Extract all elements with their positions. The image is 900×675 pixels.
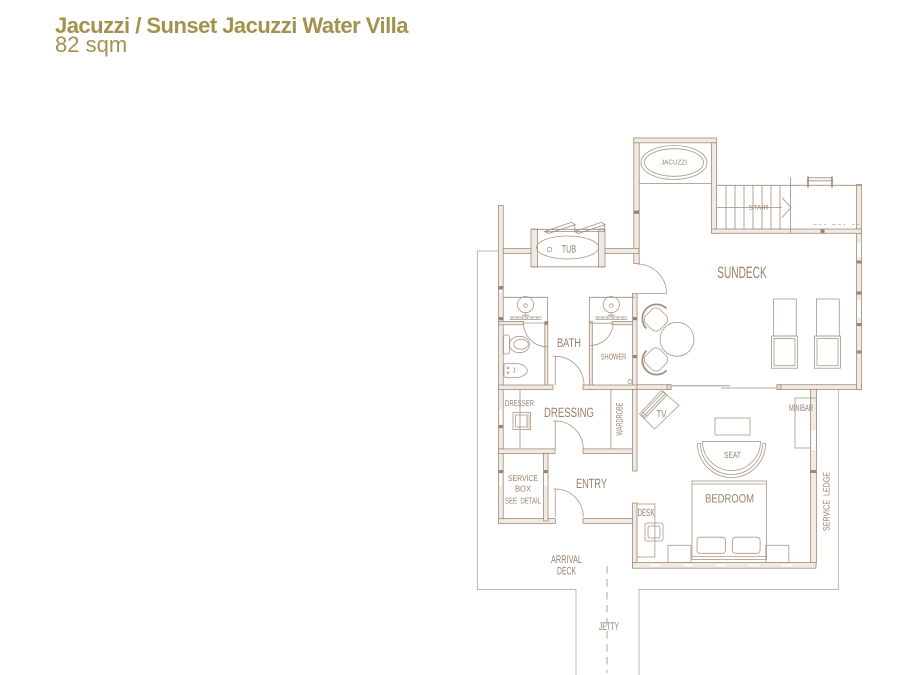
svg-text:JETTY: JETTY [599, 621, 619, 633]
svg-text:SERVICE: SERVICE [508, 473, 538, 483]
svg-text:SHOWER: SHOWER [601, 352, 627, 362]
svg-text:ARRIVAL: ARRIVAL [551, 554, 582, 566]
svg-text:BOX: BOX [515, 484, 531, 494]
svg-text:BEDROOM: BEDROOM [705, 492, 754, 506]
svg-text:STAIR: STAIR [749, 205, 769, 212]
svg-text:TUB: TUB [562, 244, 577, 256]
svg-text:TV: TV [657, 409, 667, 421]
svg-text:DECK: DECK [557, 566, 576, 578]
svg-text:SERVICE LEDGE: SERVICE LEDGE [822, 472, 832, 531]
svg-text:MINIBAR: MINIBAR [789, 403, 813, 414]
svg-text:BATH: BATH [557, 336, 581, 350]
svg-text:SUNDECK: SUNDECK [717, 264, 767, 282]
svg-text:SEAT: SEAT [724, 450, 741, 460]
svg-text:ENTRY: ENTRY [576, 476, 607, 491]
svg-text:JACUZZI: JACUZZI [661, 160, 687, 167]
svg-text:DRESSER: DRESSER [505, 398, 534, 408]
svg-text:DESK: DESK [638, 507, 655, 519]
svg-text:DRESSING: DRESSING [544, 405, 594, 420]
svg-text:SEE DETAIL: SEE DETAIL [505, 496, 541, 506]
svg-text:WARDROBE: WARDROBE [615, 403, 625, 436]
